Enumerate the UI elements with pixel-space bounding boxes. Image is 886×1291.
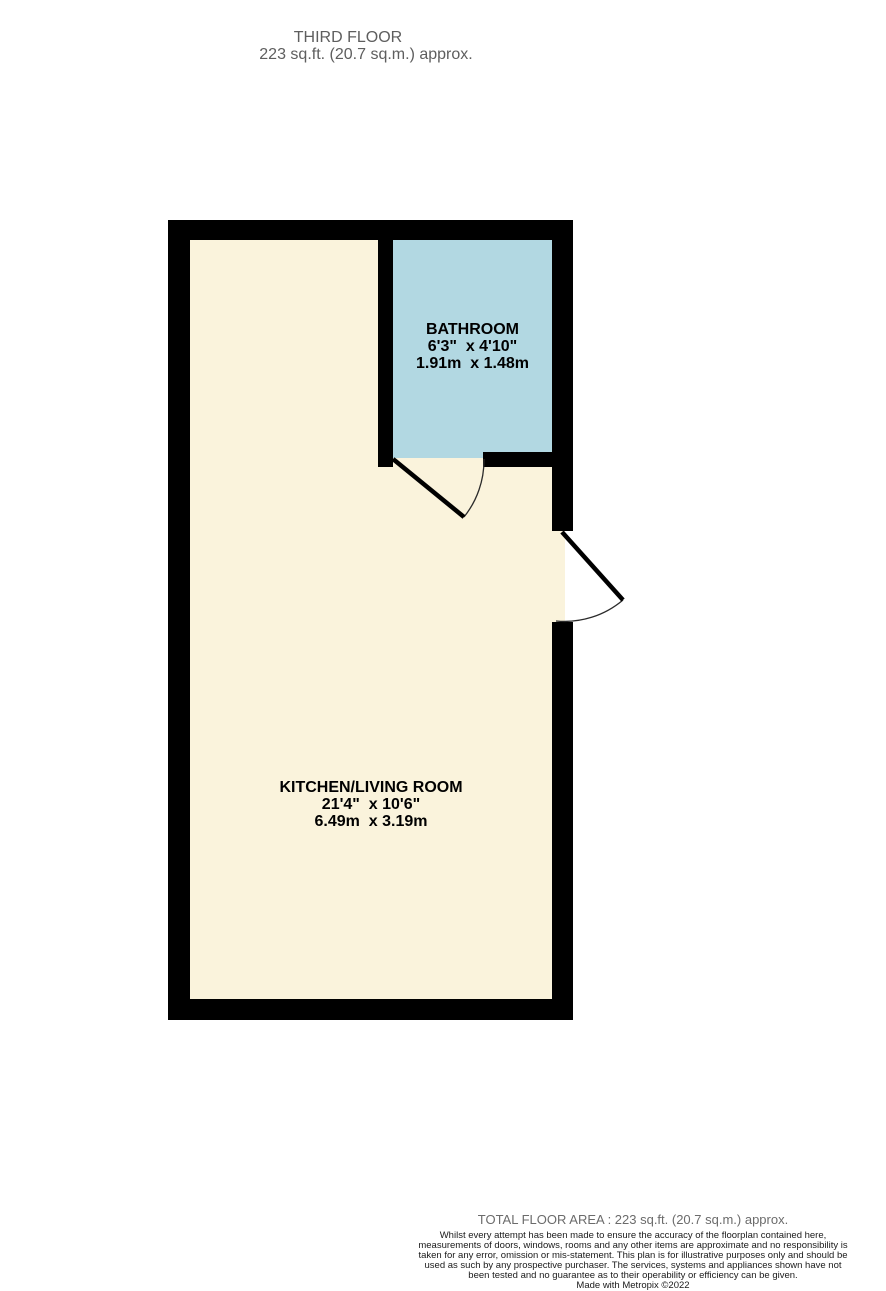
wall-right-lower bbox=[552, 622, 573, 1020]
metropix-credit: Made with Metropix ©2022 bbox=[415, 1281, 851, 1291]
wall-right-upper bbox=[552, 220, 573, 531]
footer-block: TOTAL FLOOR AREA : 223 sq.ft. (20.7 sq.m… bbox=[415, 1212, 851, 1290]
wall-bottom bbox=[168, 999, 573, 1020]
entry-door-swing-arc bbox=[556, 600, 623, 621]
entry-door-leaf bbox=[562, 532, 623, 600]
bathroom-name: BATHROOM bbox=[393, 321, 552, 338]
wall-left bbox=[168, 220, 190, 1020]
kitchen-living-room-dims-metric: 6.49m x 3.19m bbox=[190, 813, 552, 830]
kitchen-living-room-dims-imperial: 21'4" x 10'6" bbox=[190, 796, 552, 813]
entry-doorway-floor bbox=[552, 531, 565, 622]
kitchen-living-room-name: KITCHEN/LIVING ROOM bbox=[190, 779, 552, 796]
bathroom-dims-imperial: 6'3" x 4'10" bbox=[393, 338, 552, 355]
bathroom-dims-metric: 1.91m x 1.48m bbox=[393, 355, 552, 372]
kitchen-living-room-label: KITCHEN/LIVING ROOM 21'4" x 10'6" 6.49m … bbox=[190, 779, 552, 830]
wall-top bbox=[168, 220, 573, 240]
total-floor-area: TOTAL FLOOR AREA : 223 sq.ft. (20.7 sq.m… bbox=[415, 1212, 851, 1227]
bathroom-label: BATHROOM 6'3" x 4'10" 1.91m x 1.48m bbox=[393, 321, 552, 372]
floorplan-drawing bbox=[0, 0, 886, 1291]
disclaimer-text: Whilst every attempt has been made to en… bbox=[415, 1231, 851, 1281]
wall-bathroom-partition bbox=[378, 240, 393, 467]
wall-bathroom-bottom bbox=[483, 452, 573, 467]
